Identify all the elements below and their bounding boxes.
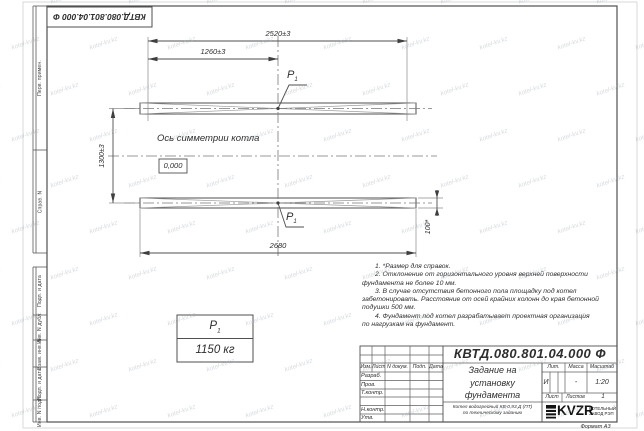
dim-2520: 2520±3	[248, 29, 308, 38]
load-table-value: 1150 кг	[177, 339, 253, 362]
stamp-sprav-n: Справ. N	[33, 150, 47, 253]
row-prov: Пров.	[361, 381, 376, 390]
hdr-mass: Масса	[565, 363, 587, 372]
extension-lines	[109, 37, 443, 257]
note-line-6: подушки 500 мм.	[362, 304, 636, 312]
elevation-mark: 0,000	[159, 159, 187, 173]
note-line-3: фундамента не более 10 мм.	[362, 280, 636, 288]
symmetry-axis-label: Ось симметрии котла	[157, 133, 259, 144]
load-point-bottom: P1	[286, 211, 297, 225]
stamp-label: Перв. примен.	[37, 60, 43, 96]
stamp-vzam-inv: Взам. инв. N	[33, 340, 47, 367]
val-scale: 1:20	[587, 372, 617, 393]
load-table-symbol: P1	[177, 315, 253, 338]
load-point-top: P1	[287, 69, 298, 83]
titleblock-subtitle: Котел водогрейный КВ-0,93 Д (ПТ) по техн…	[443, 405, 542, 418]
dim-1300: 1300±3	[99, 135, 111, 177]
col-list: Лист	[372, 363, 385, 372]
lbl-sheet: Лист	[542, 393, 562, 402]
centerlines	[108, 36, 437, 258]
col-podp: Подп.	[410, 363, 429, 372]
titleblock-doc-number: КВТД.080.801.04.000 Ф	[443, 345, 617, 363]
stamp-label: Взам. инв. N	[37, 338, 43, 370]
stamp-perv-primen: Перв. примен.	[33, 6, 47, 150]
titleblock-title: Задание на установку фундамента	[443, 364, 542, 402]
row-razrab: Разраб.	[361, 372, 381, 381]
row-tkontr: Т.контр.	[361, 389, 384, 397]
val-mass: -	[565, 372, 587, 393]
row-utv: Утв.	[361, 414, 374, 422]
dimension-lines	[113, 41, 437, 253]
val-sheets: 1	[592, 393, 614, 402]
notes-block: 1. *Размер для справок. 2. Отклонение от…	[362, 263, 636, 329]
load-index: 1	[217, 327, 221, 334]
format-label: Формат А3	[553, 423, 638, 431]
note-line-8: по нагрузкам на фундамент.	[362, 321, 636, 329]
stamp-podp-data-1: Подп. и дата	[33, 267, 47, 315]
dim-100: 100*	[425, 209, 437, 245]
note-line-4: 3. В случае отсутствия бетонного пола пл…	[362, 288, 636, 296]
col-data: Дата	[429, 363, 443, 372]
dimension-arrows	[111, 39, 439, 255]
subtitle-line-2: по техническому заданию	[443, 411, 542, 417]
hdr-lit: Лит.	[542, 363, 565, 372]
kvzr-logo-subtext: КОТЕЛЬНЫЙ ЗАВОД РЭП	[589, 406, 616, 417]
dim-1260: 1260±3	[183, 47, 243, 56]
dim-2680: 2680	[248, 241, 308, 250]
drawing-sheet: { "sheet": { "code": "КВТД.080.801.04.00…	[0, 0, 644, 430]
title-line-1: Задание на	[443, 364, 542, 377]
col-ndoc: N докум.	[385, 363, 410, 372]
note-line-7: 4. Фундамент под котел разрабатывает про…	[362, 313, 636, 321]
title-line-3: фундамента	[443, 389, 542, 402]
stamp-inv-dubl: Инв. N дубл.	[33, 315, 47, 340]
row-nkontr: Н.контр.	[361, 406, 385, 415]
title-line-2: установку	[443, 377, 542, 390]
stamp-label: Подп. и дата	[37, 275, 43, 307]
hdr-scale: Масштаб	[587, 363, 617, 372]
rotated-doc-code: КВТД.080.801.04.000 Ф	[47, 7, 152, 27]
stamp-label: Справ. N	[37, 190, 43, 213]
kvzr-logo-emblem	[546, 405, 556, 419]
stamp-label: Инв. N подл.	[37, 395, 43, 427]
load-symbol: P	[209, 320, 217, 332]
stamp-inv-podl: Инв. N подл.	[33, 400, 47, 422]
col-izm: Изм.	[360, 363, 372, 372]
val-lit: И	[542, 372, 550, 393]
lbl-sheets: Листов	[566, 393, 585, 402]
note-line-2: 2. Отклонение от горизонтального уровня …	[362, 271, 636, 279]
logo-sub-line-2: ЗАВОД РЭП	[589, 411, 616, 416]
load-index: 1	[293, 219, 296, 225]
load-index: 1	[294, 77, 297, 83]
